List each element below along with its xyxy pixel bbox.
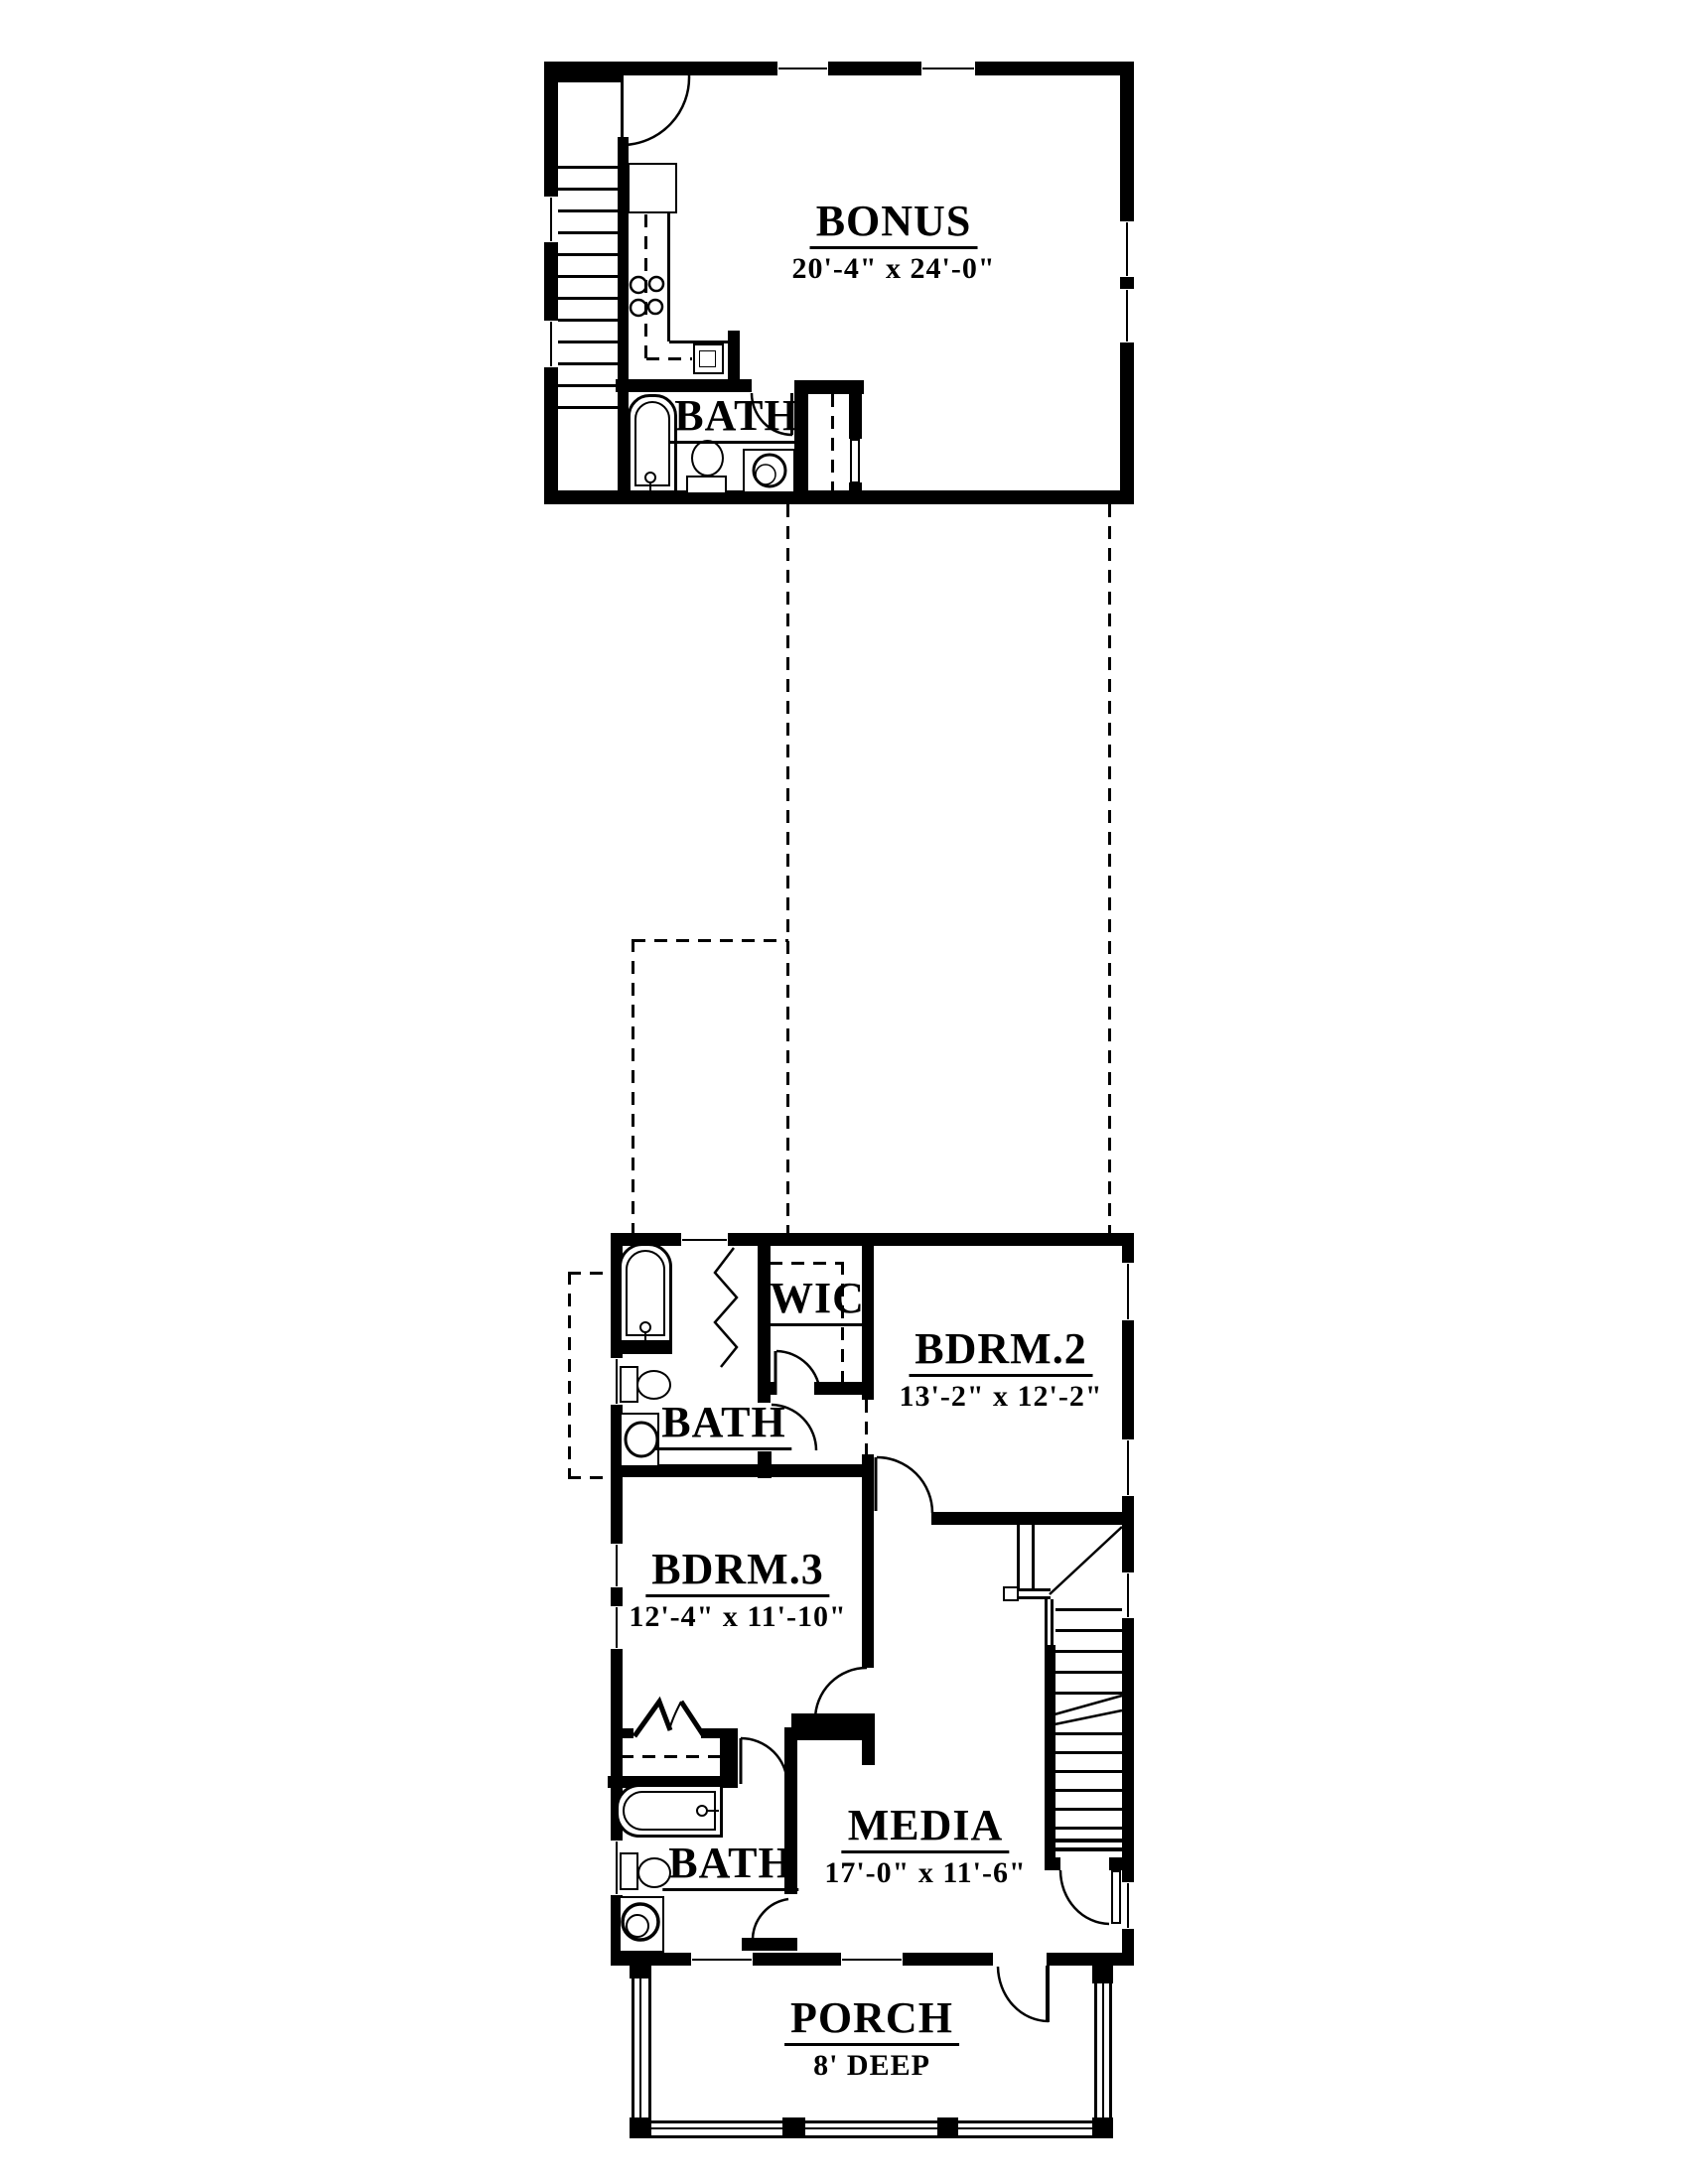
wall <box>1045 1857 1060 1870</box>
wall <box>558 72 622 82</box>
porch-post <box>630 1958 651 1979</box>
bathtub-rim <box>634 401 670 486</box>
stair-tread <box>1055 1827 1122 1830</box>
porch-post <box>1092 1963 1113 1983</box>
wall <box>849 482 862 490</box>
porch-railing <box>632 2135 1113 2138</box>
stair-tread <box>1055 1629 1122 1632</box>
stair-diagonal <box>1050 1527 1122 1594</box>
wall <box>784 1727 875 1740</box>
room-name: PORCH <box>784 1995 959 2046</box>
room-name: BATH <box>668 393 804 444</box>
window <box>921 62 975 75</box>
stair-tread <box>558 275 618 278</box>
projection-line <box>632 939 634 1234</box>
porch-railing <box>1102 1983 1104 2118</box>
door-leaf <box>621 75 624 145</box>
room-label-bdrm3: BDRM.3 12'-4" x 11'-10" <box>629 1547 846 1633</box>
window <box>544 197 558 242</box>
bathtub-rim <box>626 1250 665 1336</box>
stair-tread <box>1055 1650 1122 1653</box>
stair-railing <box>1017 1524 1020 1591</box>
vanity <box>620 1413 659 1467</box>
porch-railing <box>632 2120 1113 2123</box>
room-name: MEDIA <box>842 1803 1010 1853</box>
porch-railing <box>632 1979 634 2118</box>
toilet-tank <box>620 1852 638 1890</box>
window <box>1122 1572 1134 1618</box>
stove-burner <box>648 300 662 314</box>
window <box>1120 221 1134 277</box>
newel-post <box>1003 1586 1019 1601</box>
stair-tread <box>1055 1608 1122 1611</box>
wall <box>1109 1857 1134 1870</box>
wall <box>1120 62 1134 504</box>
room-label-bath-lower: BATH <box>662 1841 798 1891</box>
bifold-door <box>634 1702 670 1736</box>
stair-tread <box>1055 1847 1122 1851</box>
wall <box>611 1343 672 1354</box>
stair-railing <box>1045 1599 1048 1647</box>
stair-railing <box>1019 1588 1051 1591</box>
toilet-tank <box>686 476 727 494</box>
window <box>1122 1439 1134 1496</box>
stair-break-line <box>1055 1710 1122 1724</box>
stair-tread <box>558 253 618 256</box>
window <box>544 321 558 367</box>
stair-tread <box>558 166 618 169</box>
room-name: BONUS <box>810 199 978 249</box>
stair-tread <box>1055 1692 1122 1695</box>
room-dims: 17'-0" x 11'-6" <box>824 1856 1026 1889</box>
counter-dashed-line <box>644 214 647 359</box>
window <box>611 1544 623 1587</box>
room-dims: 8' DEEP <box>784 2049 959 2082</box>
stair-tread <box>1055 1789 1122 1792</box>
room-name: WIC <box>764 1276 871 1326</box>
stair-tread <box>1055 1732 1122 1735</box>
stair-tread <box>558 297 618 300</box>
window <box>691 1953 753 1966</box>
door-swing <box>998 1967 1049 2021</box>
window <box>777 62 828 75</box>
toilet-bowl <box>691 440 724 477</box>
projection-line <box>1108 504 1111 1234</box>
door-swing <box>1060 1870 1109 1924</box>
room-label-bdrm2: BDRM.2 13'-2" x 12'-2" <box>900 1326 1103 1413</box>
projection-line <box>568 1476 612 1479</box>
room-dims: 13'-2" x 12'-2" <box>900 1380 1103 1413</box>
wall <box>544 62 1134 75</box>
kitchen-sink-basin <box>699 350 716 367</box>
door-opening <box>993 1953 1047 1966</box>
stair-tread <box>558 231 618 234</box>
floor-plan: BONUS 20'-4" x 24'-0" BATH WIC BDRM.2 13… <box>0 0 1688 2184</box>
projection-line <box>568 1272 571 1479</box>
wall <box>742 1938 797 1951</box>
stair-tread <box>558 362 618 365</box>
stair-tread <box>1055 1839 1122 1843</box>
wall <box>862 1454 874 1668</box>
door-swing <box>815 1668 867 1719</box>
door-leaf <box>1111 1870 1121 1924</box>
stair-tread <box>558 341 618 343</box>
window <box>1120 289 1134 342</box>
door-swing <box>877 1457 932 1513</box>
bathtub <box>616 1784 723 1838</box>
stair-tread <box>558 384 618 387</box>
doorway-dashed <box>865 1400 868 1454</box>
wall <box>862 1740 875 1765</box>
stair-tread <box>1055 1770 1122 1773</box>
stair-tread <box>558 188 618 191</box>
room-name: BATH <box>662 1841 798 1891</box>
room-name: BDRM.2 <box>909 1326 1092 1377</box>
wall <box>544 62 558 504</box>
door-swing <box>741 1738 787 1785</box>
room-dims: 20'-4" x 24'-0" <box>792 252 996 285</box>
bifold-door <box>669 1702 681 1730</box>
wall <box>849 392 862 439</box>
vanity <box>619 1896 664 1953</box>
stair-tread <box>558 406 618 409</box>
stair-railing <box>1032 1524 1035 1591</box>
shower-curtain <box>715 1248 737 1367</box>
stair-railing <box>1051 1599 1054 1647</box>
room-label-bonus: BONUS 20'-4" x 24'-0" <box>792 199 996 285</box>
counter-edge <box>667 213 670 341</box>
door-swing <box>753 1899 788 1939</box>
counter-dashed-line <box>646 357 692 360</box>
window <box>1122 1882 1134 1929</box>
wall <box>701 1728 720 1738</box>
closet-door-leaf <box>850 439 860 483</box>
stair-tread <box>1055 1671 1122 1674</box>
stair-tread <box>1055 1808 1122 1811</box>
door-swing <box>624 75 689 145</box>
window <box>611 1606 623 1649</box>
stair-tread <box>558 209 618 212</box>
window <box>841 1953 903 1966</box>
wall <box>728 331 740 381</box>
porch-railing <box>1109 1983 1112 2118</box>
closet-rod <box>831 394 834 490</box>
porch-railing <box>639 1979 641 2118</box>
stair-tread <box>558 319 618 322</box>
stair-tread <box>1055 1751 1122 1754</box>
vanity <box>743 449 795 493</box>
wall <box>791 1713 875 1727</box>
room-label-wic: WIC <box>764 1276 871 1326</box>
stair-break-line <box>1055 1696 1122 1714</box>
porch-railing <box>632 2127 1113 2129</box>
window <box>681 1233 728 1246</box>
window <box>1122 1263 1134 1320</box>
wall <box>617 1728 633 1738</box>
bathtub <box>619 1243 672 1343</box>
bathtub-rim <box>623 1791 716 1831</box>
porch-railing <box>648 1979 651 2118</box>
wall <box>1045 1645 1055 1857</box>
projection-line <box>568 1272 612 1275</box>
door-leaf <box>1046 1966 1050 2022</box>
room-dims: 12'-4" x 11'-10" <box>629 1600 846 1633</box>
room-label-media: MEDIA 17'-0" x 11'-6" <box>824 1803 1026 1889</box>
room-label-bath-bonus: BATH <box>668 393 804 444</box>
toilet-bowl <box>636 1370 671 1400</box>
room-name: BATH <box>655 1400 791 1450</box>
closet-shelf <box>621 1755 720 1758</box>
projection-line <box>633 939 788 942</box>
porch-railing <box>1094 1983 1097 2118</box>
room-label-porch: PORCH 8' DEEP <box>784 1995 959 2082</box>
room-label-bath-upper: BATH <box>655 1400 791 1450</box>
room-name: BDRM.3 <box>645 1547 829 1597</box>
stove-burner <box>649 277 663 291</box>
closet-shelf <box>770 1262 844 1265</box>
wall <box>758 1382 776 1395</box>
projection-line <box>786 504 789 1234</box>
refrigerator <box>628 163 677 213</box>
